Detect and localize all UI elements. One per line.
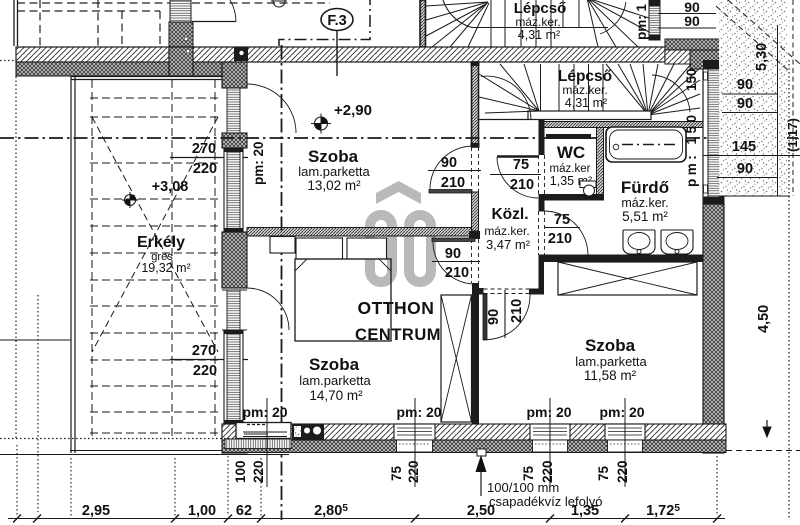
svg-text:Erkély: Erkély bbox=[137, 234, 185, 251]
svg-text:75: 75 bbox=[513, 157, 529, 173]
svg-text:220: 220 bbox=[251, 460, 266, 483]
svg-text:Közl.: Közl. bbox=[491, 206, 528, 223]
svg-text:90: 90 bbox=[737, 96, 753, 112]
svg-text:pm: 20: pm: 20 bbox=[396, 404, 441, 420]
svg-text:210: 210 bbox=[509, 299, 525, 323]
svg-text:75: 75 bbox=[554, 212, 570, 228]
svg-text:+3,08: +3,08 bbox=[152, 179, 189, 195]
svg-text:4,31 m²: 4,31 m² bbox=[518, 28, 560, 42]
svg-text:+2,90: +2,90 bbox=[334, 102, 372, 119]
svg-text:5,51 m²: 5,51 m² bbox=[622, 209, 668, 224]
svg-text:lam.parketta: lam.parketta bbox=[299, 373, 371, 388]
svg-text:Fürdő: Fürdő bbox=[621, 178, 669, 197]
svg-text:220: 220 bbox=[193, 161, 217, 177]
svg-text:4,50: 4,50 bbox=[756, 305, 772, 333]
svg-text:75: 75 bbox=[596, 465, 611, 481]
svg-text:F.3: F.3 bbox=[327, 13, 346, 29]
svg-text:máz.ker.: máz.ker. bbox=[484, 224, 529, 238]
svg-text:150: 150 bbox=[684, 68, 699, 91]
svg-text:100: 100 bbox=[233, 460, 248, 483]
svg-text:220: 220 bbox=[406, 460, 421, 483]
svg-text:pm: 150: pm: 150 bbox=[684, 111, 699, 187]
svg-text:75: 75 bbox=[521, 465, 536, 481]
svg-text:1,35: 1,35 bbox=[571, 503, 599, 519]
svg-text:Szoba: Szoba bbox=[309, 355, 360, 374]
svg-text:pm: 20: pm: 20 bbox=[242, 404, 287, 420]
svg-text:(1,17): (1,17) bbox=[785, 118, 800, 152]
svg-text:62: 62 bbox=[236, 503, 252, 519]
svg-text:145: 145 bbox=[732, 139, 756, 155]
svg-text:210: 210 bbox=[510, 177, 534, 193]
svg-text:2,95: 2,95 bbox=[82, 503, 110, 519]
svg-text:90: 90 bbox=[737, 77, 753, 93]
svg-text:90: 90 bbox=[441, 155, 457, 171]
svg-text:270: 270 bbox=[192, 141, 216, 157]
svg-text:máz.ker.: máz.ker. bbox=[621, 196, 668, 210]
svg-text:90: 90 bbox=[486, 309, 502, 325]
svg-text:270: 270 bbox=[192, 343, 216, 359]
svg-text:75: 75 bbox=[389, 465, 404, 481]
svg-text:13,02 m²: 13,02 m² bbox=[307, 178, 361, 193]
svg-text:210: 210 bbox=[445, 265, 469, 281]
svg-text:3,47 m²: 3,47 m² bbox=[486, 237, 531, 252]
svg-text:lam.parketta: lam.parketta bbox=[298, 164, 370, 179]
svg-text:210: 210 bbox=[548, 231, 572, 247]
svg-text:90: 90 bbox=[684, 13, 700, 29]
svg-text:WC: WC bbox=[557, 143, 585, 162]
svg-text:OTTHON: OTTHON bbox=[358, 298, 435, 318]
svg-text:14,70 m²: 14,70 m² bbox=[309, 388, 363, 403]
svg-text:220: 220 bbox=[615, 460, 630, 483]
svg-text:máz.ker.: máz.ker. bbox=[515, 15, 560, 29]
svg-text:Szoba: Szoba bbox=[585, 336, 636, 355]
svg-text:2,50: 2,50 bbox=[467, 503, 495, 519]
svg-text:5,30: 5,30 bbox=[754, 43, 770, 71]
svg-text:pm: 20: pm: 20 bbox=[251, 141, 266, 185]
svg-text:210: 210 bbox=[441, 175, 465, 191]
svg-text:90: 90 bbox=[445, 246, 461, 262]
svg-text:1,00: 1,00 bbox=[188, 503, 216, 519]
svg-text:pm: 20: pm: 20 bbox=[599, 404, 644, 420]
svg-text:19,32 m²: 19,32 m² bbox=[141, 261, 190, 275]
svg-text:pm: 20: pm: 20 bbox=[526, 404, 571, 420]
svg-text:11,58 m²: 11,58 m² bbox=[584, 368, 637, 383]
svg-text:220: 220 bbox=[193, 363, 217, 379]
svg-text:90: 90 bbox=[737, 161, 753, 177]
svg-text:pm: 1: pm: 1 bbox=[634, 4, 649, 40]
svg-text:4,31 m²: 4,31 m² bbox=[565, 96, 607, 110]
svg-text:máz.ker.: máz.ker. bbox=[562, 83, 607, 97]
svg-text:lam.parketta: lam.parketta bbox=[575, 354, 647, 369]
svg-text:100/100 mm: 100/100 mm bbox=[487, 480, 559, 495]
